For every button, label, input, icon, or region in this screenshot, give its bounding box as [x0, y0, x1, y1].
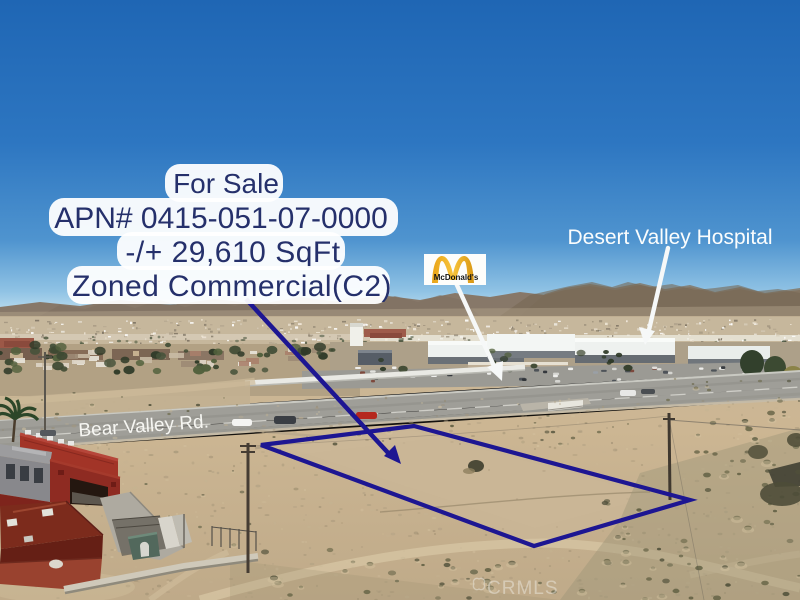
svg-text:-/+ 29,610 SqFt: -/+ 29,610 SqFt: [125, 236, 340, 269]
svg-text:Desert Valley Hospital: Desert Valley Hospital: [567, 226, 772, 249]
svg-text:For Sale: For Sale: [173, 168, 279, 199]
svg-text:McDonald's: McDonald's: [434, 273, 479, 282]
svg-text:CRMLS: CRMLS: [487, 578, 559, 599]
svg-text:Zoned Commercial(C2): Zoned Commercial(C2): [72, 270, 392, 303]
svg-text:APN# 0415-051-07-0000: APN# 0415-051-07-0000: [54, 202, 388, 235]
